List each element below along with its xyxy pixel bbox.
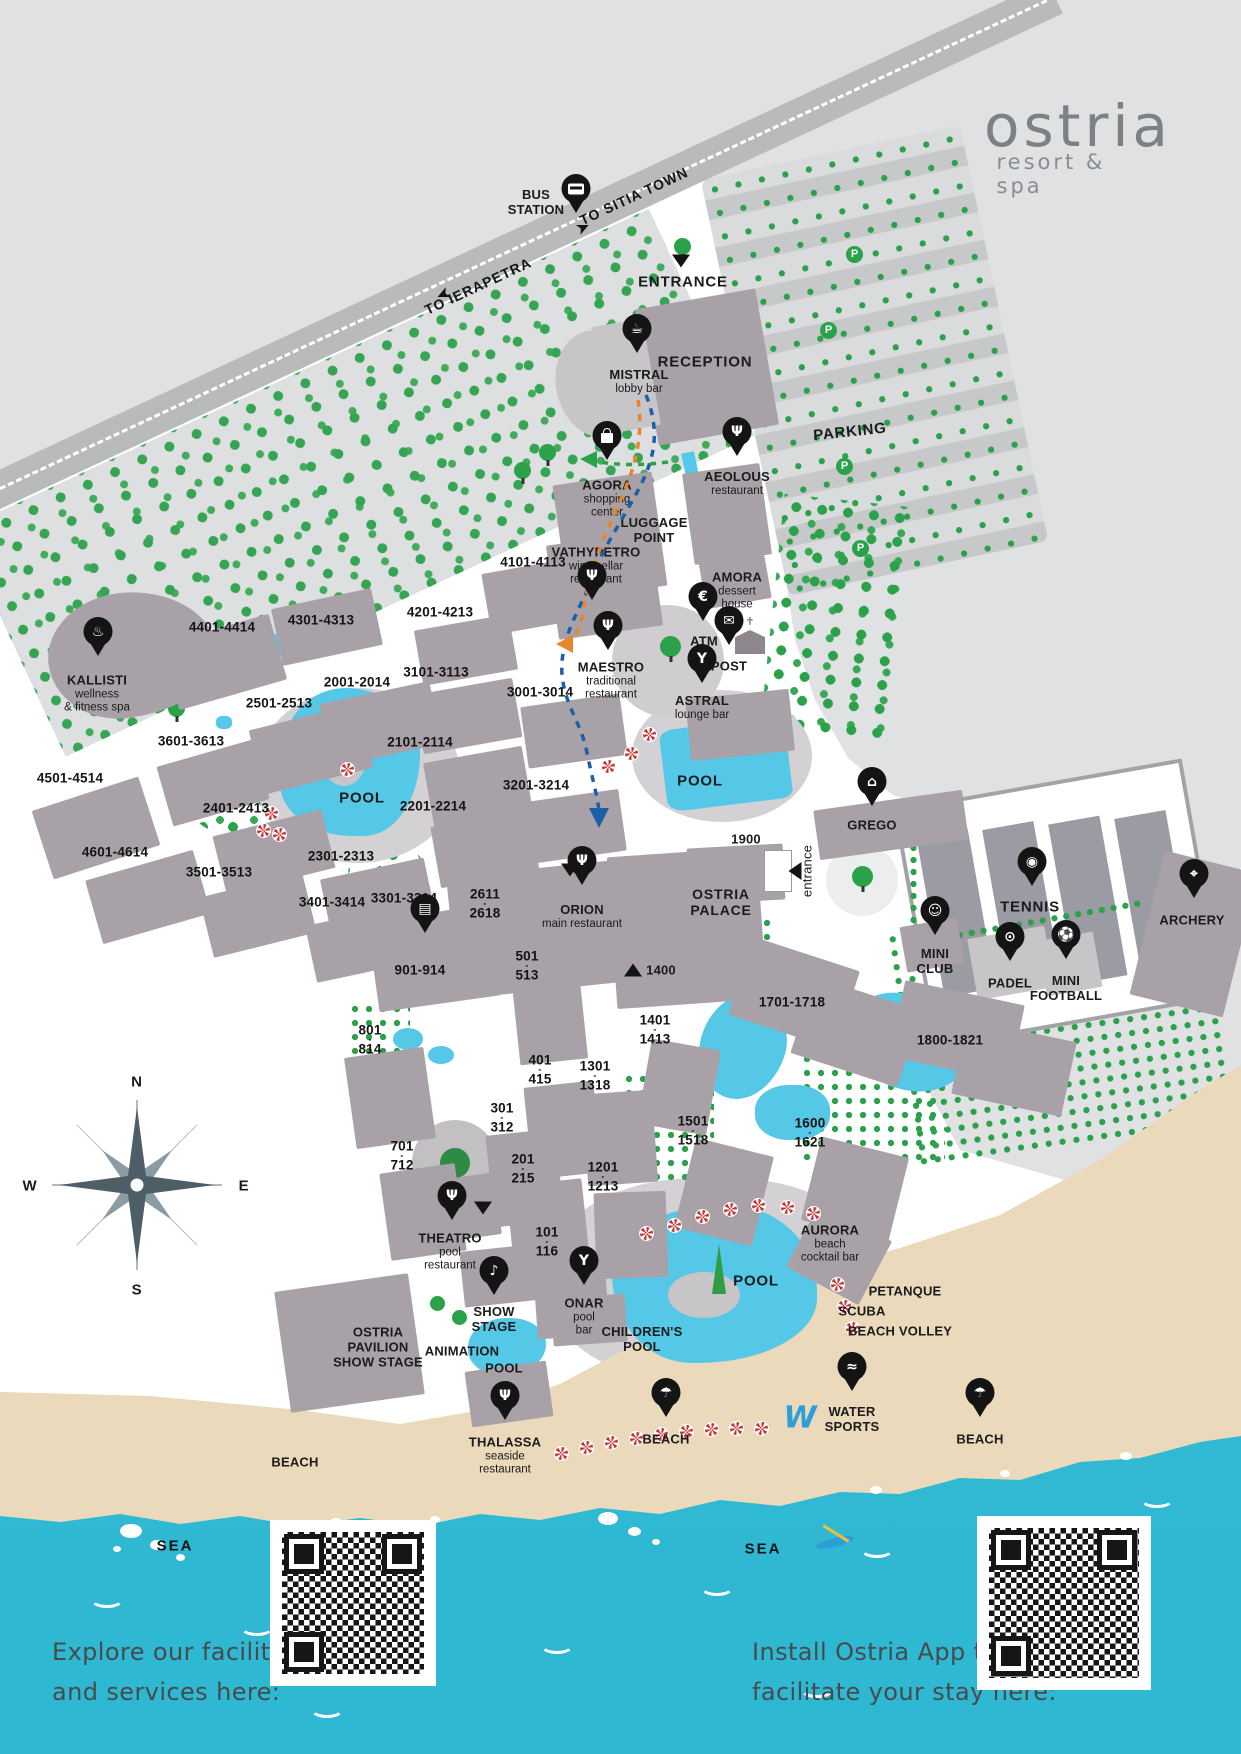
maestro-label: MAESTROtraditionalrestaurant [578,660,644,701]
room-label: 26112618 [470,887,501,920]
maestro-pin: Ψ [591,611,625,657]
room-label: 4501-4514 [37,771,103,786]
room-label: 101116 [535,1225,558,1258]
theatro-label: THEATROpoolrestaurant [418,1231,481,1272]
palace-entrance-label: entrance [801,845,816,897]
mini-club-pin: ☺ [918,896,952,942]
mini-football-pin: ⚽ [1049,920,1083,966]
compass-east: E [239,1177,250,1194]
resort-logo-tagline: resort & spa [997,150,1160,198]
onar-label: ONARpoolbar [564,1296,603,1337]
room-label: 4601-4614 [82,845,148,860]
aeolous-label: AEOLOUSrestaurant [704,470,770,498]
sea-label-east: SEA [745,1541,782,1558]
parasol-icon [830,1277,845,1292]
bush-icon [452,1310,467,1325]
scuba-label: SCUBA [838,1305,885,1320]
parasol-icon [754,1421,769,1436]
room-label: 4401-4414 [189,620,255,635]
parasol-icon [624,746,639,761]
room-label: 4101-4113 [500,555,566,570]
orion-label: ORIONmain restaurant [542,903,622,931]
mistral-label: MISTRALlobby bar [609,368,668,396]
kallisti-label: KALLISTIwellness& fitness spa [64,673,130,714]
room-label: 13011318 [580,1059,611,1092]
theatro-marker-icon [474,1202,492,1215]
water-sports-logo: W [783,1401,816,1436]
astral-label: ASTRALlounge bar [675,694,729,722]
childrens-pool-island [668,1272,740,1318]
main-pool-label: POOL [339,789,385,806]
parasol-icon [806,1206,821,1221]
mini-market-pin: ▤ [408,894,442,940]
wave-icon [540,1636,574,1654]
palm-tree [712,1244,726,1294]
parking-p-badge: P [836,458,853,475]
room-label: 3501-3513 [186,865,252,880]
vathypetro-pin: Ψ [575,561,609,607]
compass-north: N [131,1073,143,1090]
room-label: 3101-3113 [403,665,469,680]
reception-label: RECEPTION [658,353,753,370]
label-1900: 1900 [731,833,761,848]
archery-label: ARCHERY [1159,914,1224,929]
app-qr-code [985,1524,1143,1682]
parking-p-badge: P [852,540,869,557]
luggage-point-label: LUGGAGEPOINT [620,516,687,546]
grego-pin: ⌂ [855,767,889,813]
padel-pin: ⊙ [993,922,1027,968]
sea-label-west: SEA [157,1538,194,1555]
pavilion-label: OSTRIAPAVILIONSHOW STAGE [333,1326,423,1371]
animation-pool-label: POOL [485,1362,523,1377]
sea-foam [120,1524,142,1538]
restaurant-icon: Ψ [586,568,598,584]
entrance-label: ENTRANCE [638,273,728,290]
show-stage-label: SHOWSTAGE [472,1305,517,1335]
beach-pin-east: ☂ [963,1378,997,1424]
sea-foam [176,1554,185,1561]
orion-pin: Ψ [565,846,599,892]
room-label: 701712 [390,1139,413,1172]
parasol-icon [642,727,657,742]
room-label: 16001621 [795,1116,826,1149]
water-sports-icon: ≈ [846,1359,858,1375]
agora-pin [590,421,624,467]
parasol-icon [639,1226,654,1241]
footer-left-text: Explore our facilitiesand services here: [52,1638,306,1706]
childrens-pool-label: CHILDREN'SPOOL [602,1325,683,1355]
entrance-arrow-icon [672,255,690,268]
astral-pin: Y [685,644,719,690]
aeolous-pin: Ψ [720,417,754,463]
restaurant-icon: Ψ [602,618,614,634]
sea-foam [1000,1470,1010,1477]
parking-p-badge: P [846,246,863,263]
shopping-bag-icon [601,433,613,443]
building-3501 [199,872,317,958]
pond-801-b [428,1046,454,1064]
parasol-icon [695,1209,710,1224]
wave-icon [860,1540,894,1558]
resort-map: TO SITIA TOWN TO IERAPETRA ➤ ➤ PARKING P… [0,0,1241,1754]
restaurant-icon: Ψ [499,1388,511,1404]
tree-icon [539,444,556,461]
room-label: 14011413 [640,1013,671,1046]
parasol-icon [604,1435,619,1450]
room-label: 201215 [511,1152,534,1185]
tree-icon [660,636,681,657]
parasol-icon [579,1440,594,1455]
parasol-icon [601,759,616,774]
wave-icon [90,1590,124,1608]
beach-umbrella-icon: ☂ [974,1385,987,1401]
tennis-pin: ◉ [1015,847,1049,893]
beach-umbrella-icon: ☂ [660,1385,673,1401]
room-label: 3401-3414 [299,895,365,910]
wave-icon [1140,1490,1174,1508]
parasol-icon [340,762,355,777]
parasol-icon [554,1446,569,1461]
room-label: 2101-2114 [387,735,453,750]
spa-icon: ♨ [92,624,105,640]
padel-label: PADEL [988,977,1032,992]
tennis-ball-icon: ◉ [1026,854,1038,870]
cocktail-icon: Y [579,1253,589,1269]
sea-foam [113,1546,121,1552]
mini-club-label: MINICLUB [917,947,954,977]
bus-icon [568,184,584,195]
palace-entrance-arrow-icon [789,862,802,880]
room-label: 2401-2413 [203,801,269,816]
grego-label: GREGO [847,819,896,834]
room-label: 2301-2313 [308,849,374,864]
parasol-icon [729,1421,744,1436]
mini-football-label: MINIFOOTBALL [1030,974,1102,1004]
room-label: 3001-3014 [507,685,573,700]
restaurant-icon: Ψ [576,853,588,869]
cocktail-icon: Y [697,651,707,667]
aurora-pool-label: POOL [733,1272,779,1289]
archery-pin: ⌖ [1177,859,1211,905]
room-label: 2501-2513 [246,696,312,711]
compass-south: S [132,1281,143,1298]
room-label: 401415 [528,1053,551,1086]
padel-icon: ⊙ [1004,929,1016,945]
parasol-icon [667,1218,682,1233]
church-cross-icon: ✝ [746,616,755,628]
sea-foam [598,1512,618,1525]
tree-icon [674,238,691,255]
room-label: 501513 [515,949,538,982]
room-label: 2001-2014 [324,675,390,690]
mistral-pin: ☕ [620,314,654,360]
building-801 [344,1047,436,1149]
parking-p-badge: P [820,322,837,339]
room-label: 301312 [490,1101,513,1134]
parasol-icon [704,1422,719,1437]
sea-foam [430,1516,440,1523]
sea-foam [1120,1452,1132,1460]
parasol-icon [256,823,271,838]
sea-foam [870,1486,882,1494]
marker-1400-icon [624,964,642,977]
beach-label-southwest: BEACH [271,1456,318,1471]
archery-icon: ⌖ [1190,866,1198,882]
bus-station-label: BUSSTATION [508,188,565,218]
taverna-icon: ⌂ [867,774,877,790]
room-label: 2201-2214 [400,799,466,814]
atm-icon: € [698,589,708,605]
beach-label-west: BEACH [642,1433,689,1448]
wave-icon [700,1578,734,1596]
mail-icon: ✉ [723,613,735,629]
parasol-icon [780,1200,795,1215]
wave-icon [310,1700,344,1718]
room-label: 4201-4213 [407,605,473,620]
room-label: 1800-1821 [917,1033,983,1048]
parasol-icon [272,827,287,842]
facilities-qr-code [278,1528,428,1678]
teddy-bear-icon: ☺ [928,903,943,919]
onar-pin: Y [567,1246,601,1292]
sea-foam [330,1518,342,1526]
coffee-cup-icon: ☕ [631,321,644,337]
water-sports-pin: ≈ [835,1352,869,1398]
building-3001 [520,693,628,768]
sea-foam [652,1539,660,1545]
sea-foam [628,1527,641,1536]
tree-icon [852,866,873,887]
football-icon: ⚽ [1057,927,1074,943]
wave-icon [240,1618,274,1636]
beach-label-east: BEACH [956,1433,1003,1448]
show-stage-pin: ♪ [477,1256,511,1302]
room-label: 1701-1718 [759,995,825,1010]
tree-icon [514,462,531,479]
room-label: 901-914 [395,963,446,978]
astral-pool-label: POOL [677,772,723,789]
kallisti-pin: ♨ [81,617,115,663]
ostria-palace-label: OSTRIAPALACE [690,886,751,918]
bus-station-pin [559,174,593,220]
room-label: 3201-3214 [503,778,569,793]
thalassa-label: THALASSAseasiderestaurant [469,1435,541,1476]
agora-label: AGORAshoppingcenter [582,478,631,519]
animation-label: ANIMATION [425,1345,500,1360]
parasol-icon [751,1198,766,1213]
label-1400: 1400 [646,964,676,979]
restaurant-icon: Ψ [731,424,743,440]
petanque-label: PETANQUE [869,1285,942,1300]
room-label: 801814 [358,1023,381,1056]
mini-market-icon: ▤ [418,901,431,917]
beach-volley-label: BEACH VOLLEY [848,1325,952,1340]
compass-rose [42,1090,232,1280]
microphone-icon: ♪ [490,1263,499,1279]
small-pool-3601 [216,716,232,729]
theatro-pin: Ψ [435,1181,469,1227]
aurora-label: AURORAbeachcocktail bar [801,1223,859,1264]
bush-icon [430,1296,445,1311]
parasol-icon [723,1202,738,1217]
beach-pin-west: ☂ [649,1378,683,1424]
compass-west: W [23,1177,38,1194]
room-label: 4301-4313 [288,613,354,628]
room-label: 15011518 [678,1114,709,1147]
tennis-label: TENNIS [1000,898,1060,915]
room-label: 3601-3613 [158,734,224,749]
restaurant-icon: Ψ [446,1188,458,1204]
room-label: 12011213 [588,1160,619,1193]
water-sports-label: WATERSPORTS [825,1405,880,1435]
thalassa-pin: Ψ [488,1381,522,1427]
